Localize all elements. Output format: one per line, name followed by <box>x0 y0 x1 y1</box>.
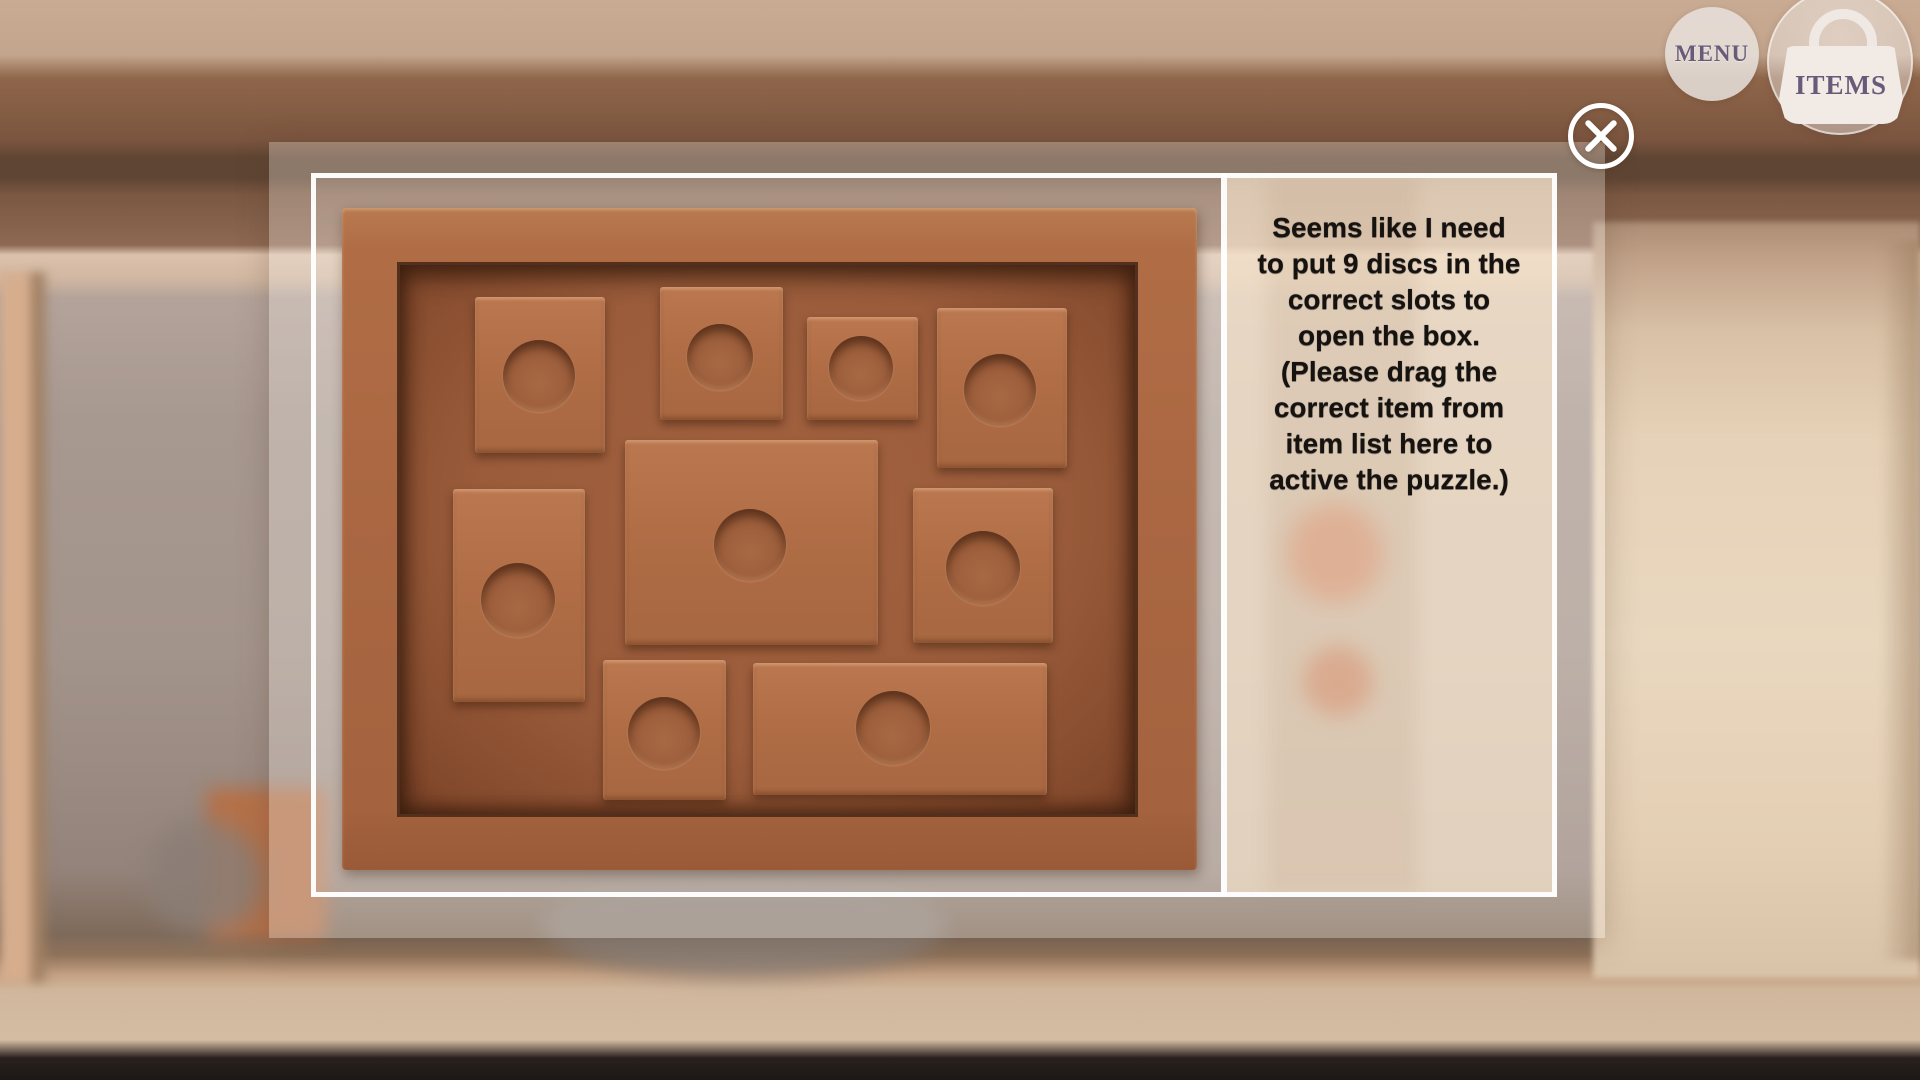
menu-button[interactable]: MENU <box>1665 7 1759 101</box>
dialog-border <box>311 173 1557 897</box>
game-screen: Seems like I need to put 9 discs in the … <box>0 0 1920 1080</box>
items-button-label: ITEMS <box>1795 70 1887 101</box>
background-door <box>1593 222 1920 978</box>
menu-button-label: MENU <box>1675 41 1749 67</box>
background-door-edge <box>1880 240 1920 960</box>
background-shelf-edge <box>0 272 54 982</box>
dialog-divider <box>1221 173 1227 897</box>
items-button[interactable]: ITEMS <box>1767 0 1913 135</box>
close-button[interactable] <box>1568 103 1634 169</box>
handbag-icon: ITEMS <box>1779 46 1903 124</box>
